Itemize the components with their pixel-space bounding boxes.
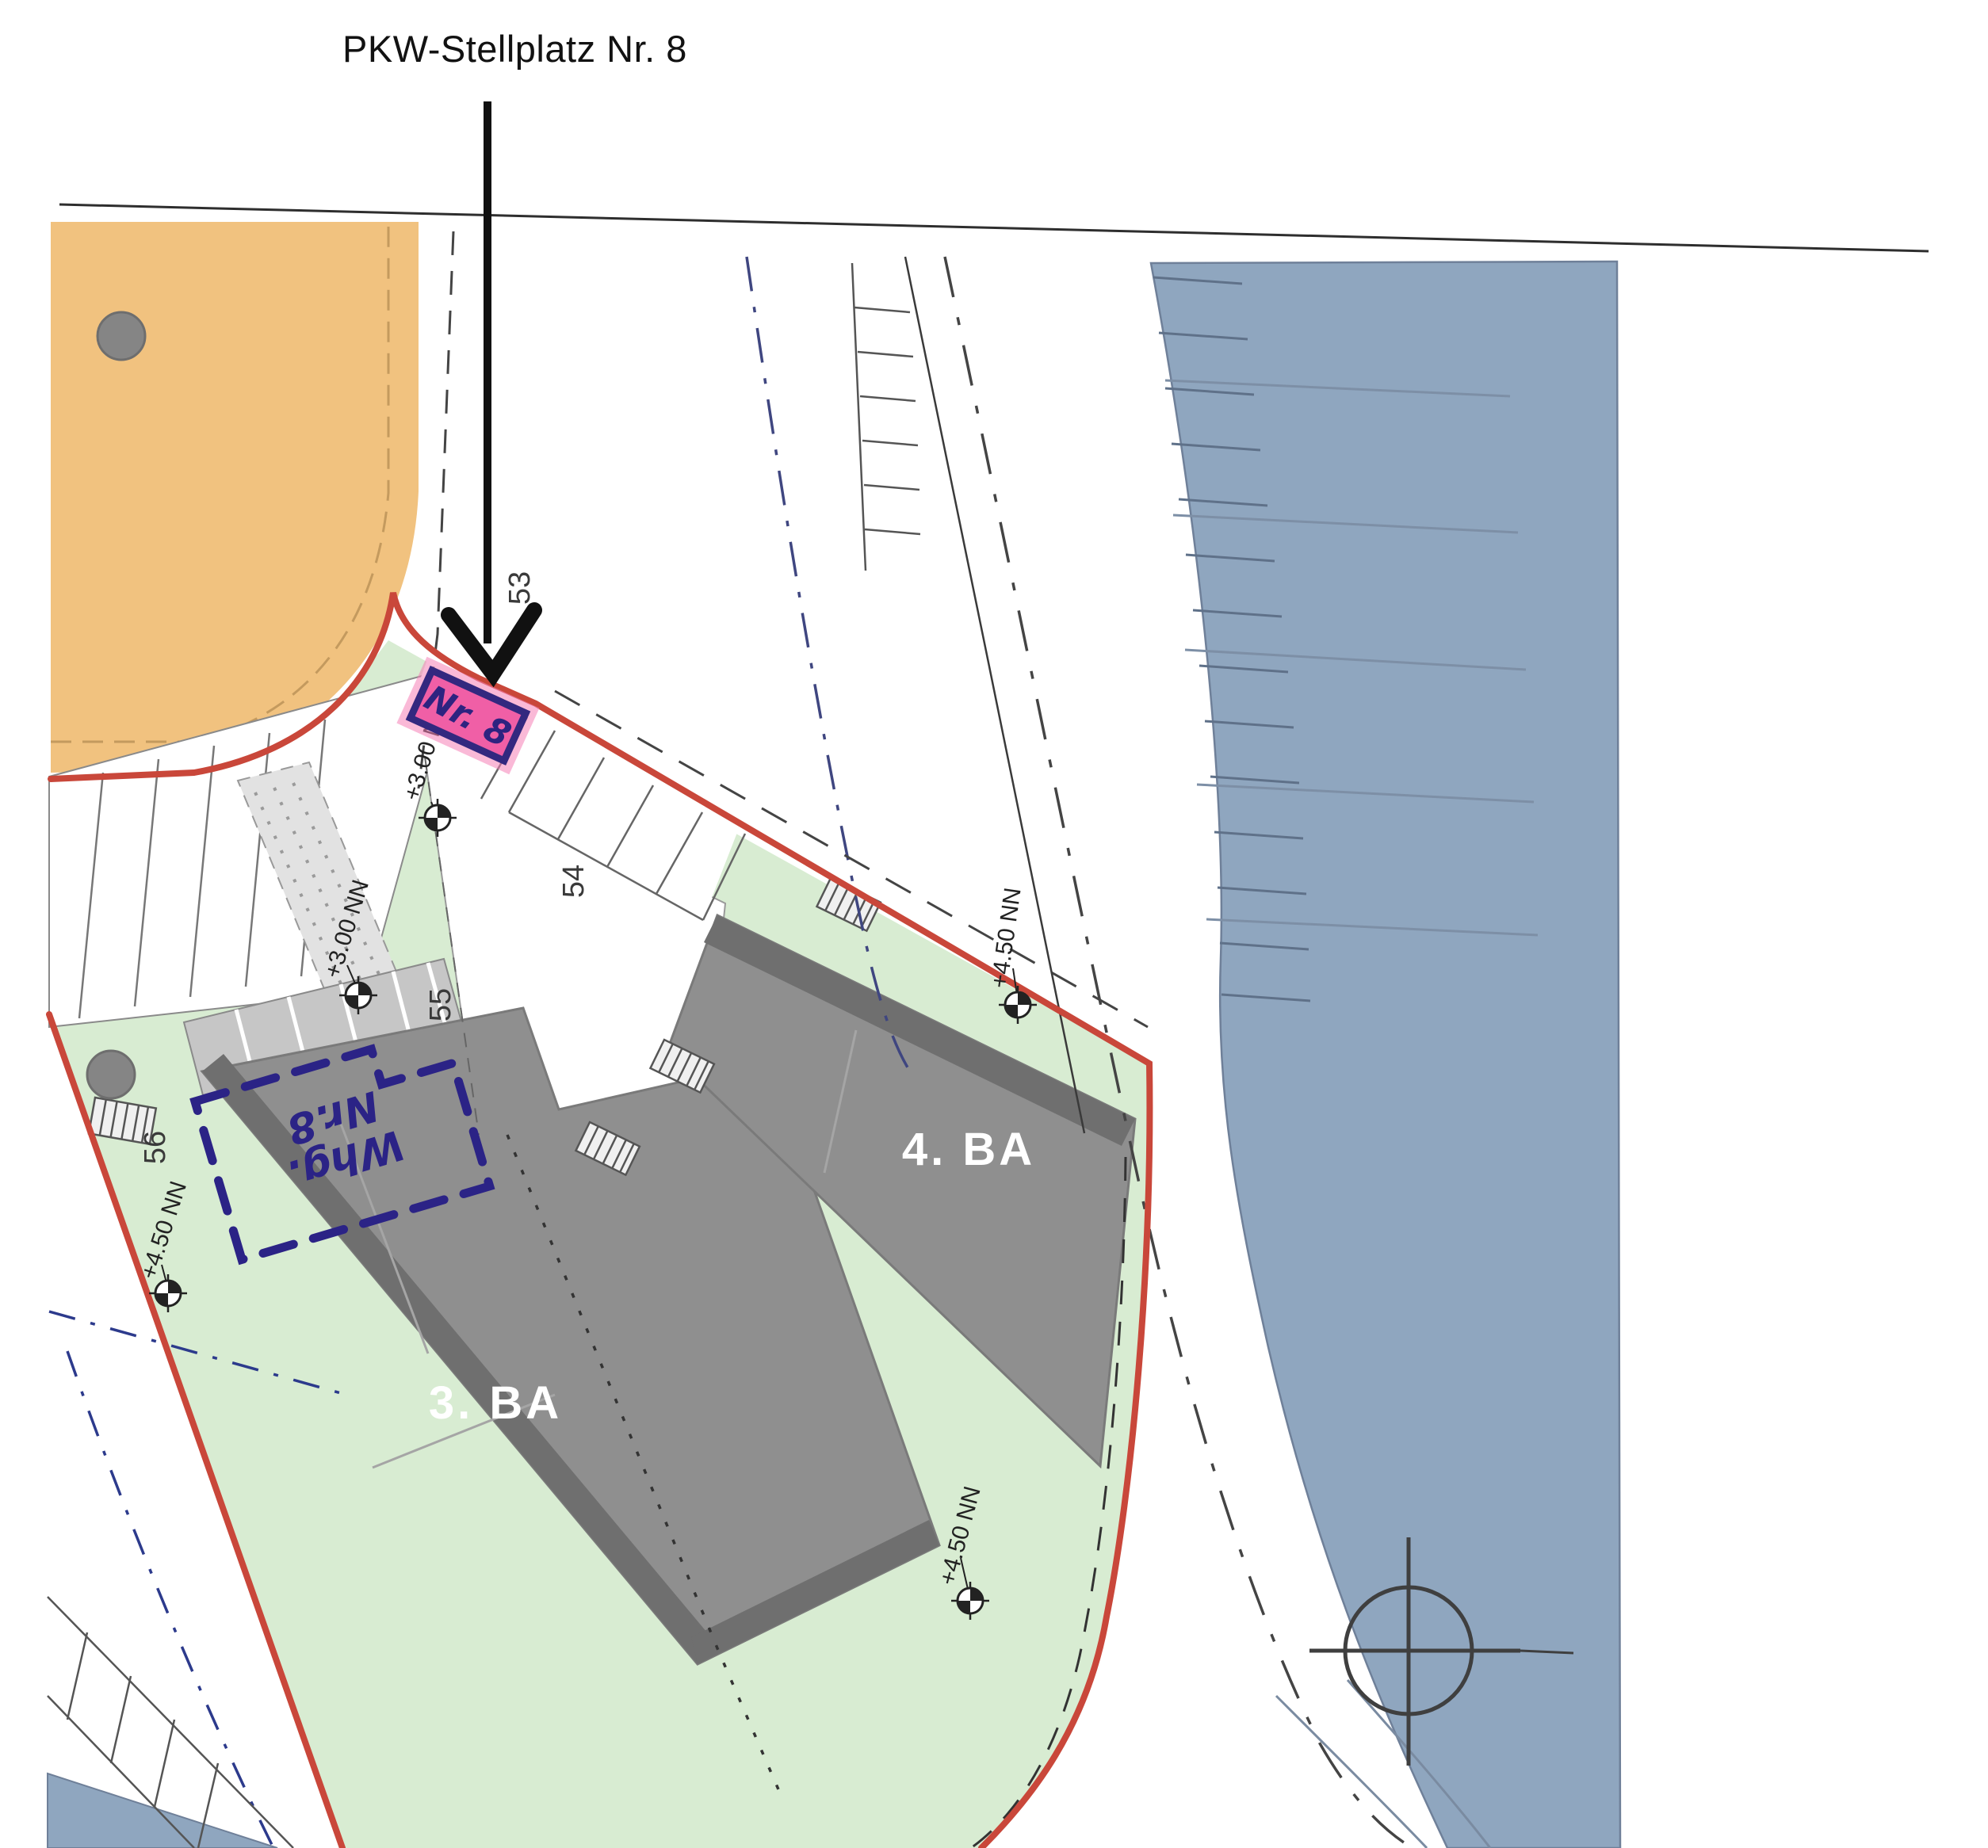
parcel-55: 55 (424, 988, 457, 1021)
annotation-title: PKW-Stellplatz Nr. 8 (342, 27, 687, 71)
top-stall-row (852, 263, 920, 571)
parcel-53: 53 (503, 571, 537, 605)
svg-text:+4.50 NN: +4.50 NN (986, 886, 1026, 990)
parcel-54: 54 (557, 865, 591, 898)
site-plan-drawing: 3. BA 4. BA (0, 0, 1988, 1848)
phase-4ba-label: 4. BA (902, 1124, 1035, 1175)
site-plan-page: 3. BA 4. BA (0, 0, 1988, 1848)
parcel-56: 56 (139, 1131, 172, 1164)
phase-3ba-label: 3. BA (429, 1377, 562, 1429)
